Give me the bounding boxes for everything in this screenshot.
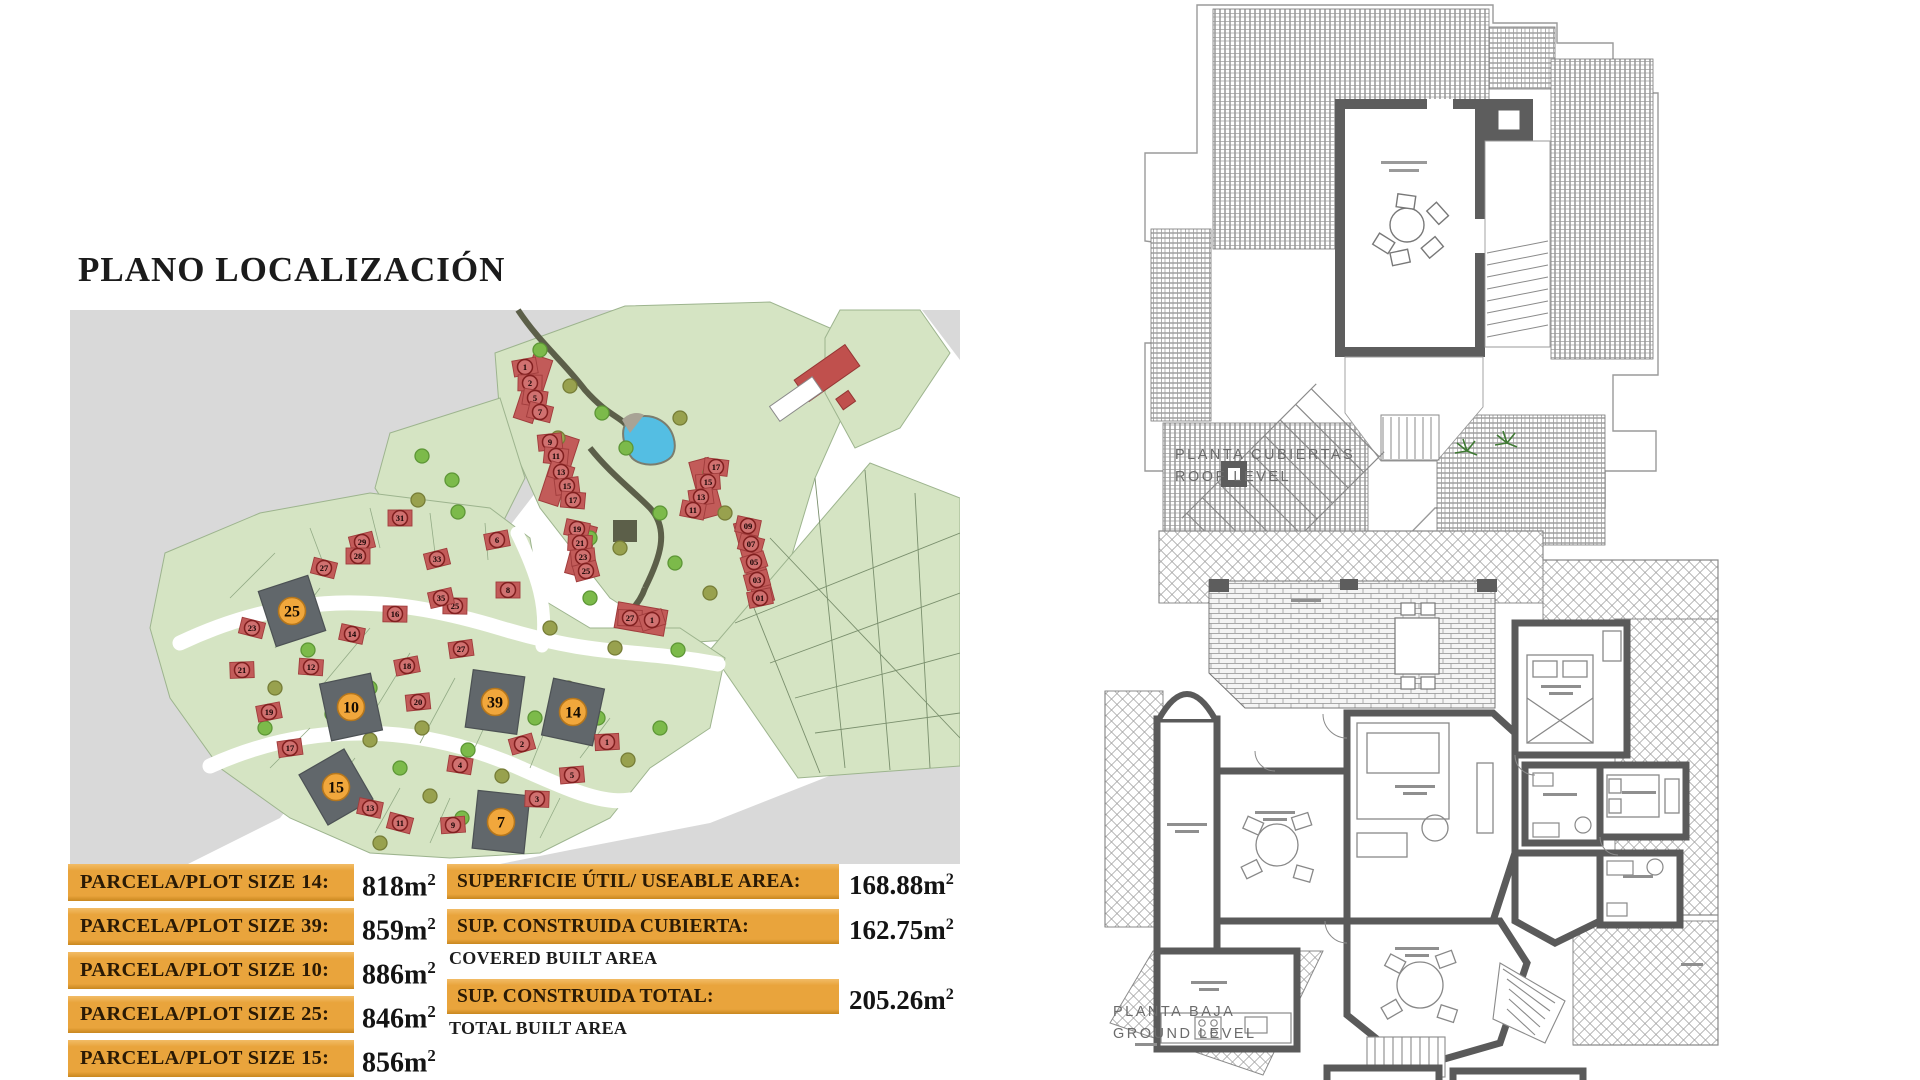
- location-map: 25103914157 3129272833232119171614122527…: [70, 298, 960, 864]
- park-plaza: [613, 520, 637, 542]
- plot-number: 19: [573, 524, 582, 534]
- plot-number: 16: [391, 609, 400, 619]
- built-area-table: SUPERFICIE ÚTIL/ USEABLE AREA:168.88m2SU…: [447, 864, 1007, 1049]
- plot-size-label-box: PARCELA/PLOT SIZE 25:: [68, 996, 354, 1033]
- plot-number: 01: [756, 593, 765, 603]
- ground-level-plan: [1095, 523, 1720, 1080]
- tree-icon: [653, 721, 667, 735]
- plot-number: 15: [563, 481, 572, 491]
- highlighted-plot-number: 15: [328, 780, 344, 797]
- plot-number: 3: [535, 794, 539, 804]
- plot-size-label-box: PARCELA/PLOT SIZE 39:: [68, 908, 354, 945]
- plot-number: 23: [248, 623, 257, 633]
- highlighted-plot-number: 39: [487, 695, 503, 712]
- plot-number: 23: [579, 552, 588, 562]
- plot-size-table: PARCELA/PLOT SIZE 14:818m2PARCELA/PLOT S…: [68, 864, 436, 1080]
- plot-number: 17: [712, 462, 721, 472]
- numbered-plot: 5: [559, 766, 584, 784]
- plot-size-label-box: PARCELA/PLOT SIZE 10:: [68, 952, 354, 989]
- plot-number: 11: [552, 451, 560, 461]
- tree-icon: [451, 505, 465, 519]
- plot-number: 1: [650, 615, 654, 625]
- plot-number: 09: [744, 521, 753, 531]
- plot-size-value: 818m2: [362, 872, 436, 901]
- tree-icon: [258, 721, 272, 735]
- built-area-row: SUP. CONSTRUIDA CUBIERTA:162.75m2COVERED…: [447, 909, 1007, 969]
- plot-number: 35: [437, 593, 446, 603]
- tree-icon: [621, 753, 635, 767]
- ground-plan-label: PLANTA BAJA GROUND LEVEL: [1113, 1001, 1257, 1046]
- plot-number: 28: [354, 551, 363, 561]
- tree-icon: [461, 743, 475, 757]
- plot-number: 2: [520, 739, 524, 749]
- built-area-row: SUP. CONSTRUIDA TOTAL:205.26m2TOTAL BUIL…: [447, 979, 1007, 1039]
- plot-size-row: PARCELA/PLOT SIZE 14:818m2: [68, 864, 436, 901]
- numbered-plot: 21: [230, 662, 255, 679]
- plot-size-row: PARCELA/PLOT SIZE 25:846m2: [68, 996, 436, 1033]
- tree-icon: [619, 441, 633, 455]
- plot-size-label: PARCELA/PLOT SIZE 39:: [80, 915, 329, 938]
- room-label-mark: [1389, 169, 1419, 172]
- built-area-label-box: SUPERFICIE ÚTIL/ USEABLE AREA:: [447, 864, 839, 899]
- roof-window: [1497, 109, 1521, 131]
- plot-number: 05: [750, 557, 759, 567]
- tree-icon: [671, 643, 685, 657]
- tree-icon: [363, 733, 377, 747]
- plot-number: 5: [570, 770, 574, 780]
- tree-icon: [703, 586, 717, 600]
- numbered-plot: 12: [298, 658, 323, 676]
- plot-number: 1: [605, 737, 609, 747]
- plot-number: 13: [697, 492, 706, 502]
- numbered-plot: 17: [560, 491, 585, 509]
- highlighted-plot: 7: [472, 790, 530, 853]
- tree-icon: [533, 343, 547, 357]
- plot-size-value: 859m2: [362, 916, 436, 945]
- roof-plan-label: PLANTA CUBIERTAS ROOF LEVEL: [1175, 444, 1355, 489]
- tree-icon: [423, 789, 437, 803]
- ground-plan-label-es: PLANTA BAJA: [1113, 1001, 1257, 1023]
- plot-number: 1: [523, 362, 527, 372]
- built-area-value: 205.26m2: [849, 986, 954, 1014]
- plot-size-label-box: PARCELA/PLOT SIZE 14:: [68, 864, 354, 901]
- plot-number: 5: [533, 393, 537, 403]
- plot-number: 25: [582, 566, 591, 576]
- tree-icon: [718, 506, 732, 520]
- tree-icon: [415, 721, 429, 735]
- built-area-label: SUP. CONSTRUIDA TOTAL:: [457, 986, 714, 1008]
- plot-number: 07: [747, 539, 756, 549]
- tree-icon: [495, 769, 509, 783]
- plot-number: 27: [320, 563, 329, 573]
- built-area-value: 162.75m2: [849, 916, 954, 944]
- plot-size-value: 846m2: [362, 1004, 436, 1033]
- numbered-plot: 28: [346, 548, 370, 564]
- numbered-plot: 1: [595, 733, 620, 750]
- highlighted-plot: 10: [320, 673, 383, 741]
- brochure-page: PLANO LOCALIZACIÓN: [0, 0, 1920, 1080]
- plot-number: 29: [358, 537, 367, 547]
- built-area-sublabel: TOTAL BUILT AREA: [449, 1018, 1007, 1039]
- tree-icon: [411, 493, 425, 507]
- roof-plan-label-es: PLANTA CUBIERTAS: [1175, 444, 1355, 466]
- tree-icon: [653, 506, 667, 520]
- page-title: PLANO LOCALIZACIÓN: [78, 250, 505, 290]
- built-area-value: 168.88m2: [849, 871, 954, 899]
- numbered-plot: 3: [525, 791, 550, 808]
- tree-icon: [528, 711, 542, 725]
- built-area-label-box: SUP. CONSTRUIDA CUBIERTA:: [447, 909, 839, 944]
- plot-number: 6: [495, 535, 499, 545]
- numbered-plot: 27: [448, 639, 474, 658]
- tree-icon: [415, 449, 429, 463]
- plot-number: 18: [403, 661, 412, 671]
- tree-icon: [595, 406, 609, 420]
- bottom-bedrooms: [1327, 1068, 1583, 1080]
- plot-size-label: PARCELA/PLOT SIZE 10:: [80, 959, 329, 982]
- plot-number: 31: [396, 513, 405, 523]
- plot-number: 14: [348, 629, 357, 639]
- plot-number: 17: [569, 495, 578, 505]
- built-area-label: SUPERFICIE ÚTIL/ USEABLE AREA:: [457, 871, 801, 893]
- built-area-label: SUP. CONSTRUIDA CUBIERTA:: [457, 916, 749, 938]
- plot-number: 11: [689, 505, 697, 515]
- tree-icon: [373, 836, 387, 850]
- bay-wall-arc: [1159, 694, 1215, 719]
- numbered-plot: 31: [388, 510, 412, 526]
- tree-icon: [543, 621, 557, 635]
- tree-icon: [668, 556, 682, 570]
- plot-number: 13: [366, 803, 375, 813]
- numbered-plot: 16: [383, 606, 407, 622]
- roof-terrace-right: [1485, 141, 1550, 347]
- plot-number: 21: [238, 665, 247, 675]
- plot-size-row: PARCELA/PLOT SIZE 15:856m2: [68, 1040, 436, 1077]
- tree-icon: [445, 473, 459, 487]
- plot-number: 27: [626, 613, 635, 623]
- ground-plan-label-en: GROUND LEVEL: [1113, 1023, 1257, 1045]
- numbered-plot: 8: [496, 582, 520, 598]
- built-area-row: SUPERFICIE ÚTIL/ USEABLE AREA:168.88m2: [447, 864, 1007, 899]
- highlighted-plot-number: 25: [284, 604, 300, 621]
- plot-number: 21: [576, 538, 585, 548]
- plot-number: 33: [433, 554, 442, 564]
- plot-number: 12: [307, 662, 316, 672]
- plot-size-label: PARCELA/PLOT SIZE 25:: [80, 1003, 329, 1026]
- numbered-plot: 20: [405, 693, 431, 711]
- plot-size-row: PARCELA/PLOT SIZE 10:886m2: [68, 952, 436, 989]
- tree-icon: [673, 411, 687, 425]
- plot-number: 2: [528, 378, 532, 388]
- tree-icon: [613, 541, 627, 555]
- plot-number: 9: [548, 437, 552, 447]
- tree-icon: [608, 641, 622, 655]
- roof-plan-label-en: ROOF LEVEL: [1175, 466, 1355, 488]
- plot-number: 27: [457, 644, 466, 654]
- plot-number: 13: [557, 467, 566, 477]
- built-area-sublabel: COVERED BUILT AREA: [449, 948, 1007, 969]
- plot-number: 8: [506, 585, 510, 595]
- tree-icon: [393, 761, 407, 775]
- plot-size-value: 886m2: [362, 960, 436, 989]
- numbered-plot: 17: [277, 738, 303, 757]
- plot-number: 19: [265, 707, 274, 717]
- plot-number: 9: [451, 820, 455, 830]
- tree-icon: [301, 643, 315, 657]
- plot-number: 20: [414, 697, 423, 707]
- tree-icon: [583, 591, 597, 605]
- highlighted-plot-number: 7: [497, 815, 505, 832]
- plot-size-value: 856m2: [362, 1048, 436, 1077]
- built-area-label-box: SUP. CONSTRUIDA TOTAL:: [447, 979, 839, 1014]
- plot-number: 17: [286, 743, 295, 753]
- brick-terrace: [1209, 581, 1495, 708]
- highlighted-plot: 39: [465, 670, 525, 735]
- numbered-plot: 9: [440, 816, 465, 834]
- room-label-mark: [1381, 161, 1427, 164]
- plot-number: 11: [396, 818, 404, 828]
- plot-size-label: PARCELA/PLOT SIZE 14:: [80, 871, 329, 894]
- plot-size-row: PARCELA/PLOT SIZE 39:859m2: [68, 908, 436, 945]
- numbered-plot: 4: [447, 755, 473, 775]
- highlighted-plot-number: 14: [565, 705, 581, 722]
- plot-number: 15: [704, 477, 713, 487]
- tree-icon: [563, 379, 577, 393]
- plot-number: 03: [753, 575, 762, 585]
- plot-size-label: PARCELA/PLOT SIZE 15:: [80, 1047, 329, 1070]
- plot-size-label-box: PARCELA/PLOT SIZE 15:: [68, 1040, 354, 1077]
- highlighted-plot-number: 10: [343, 700, 359, 717]
- tree-icon: [268, 681, 282, 695]
